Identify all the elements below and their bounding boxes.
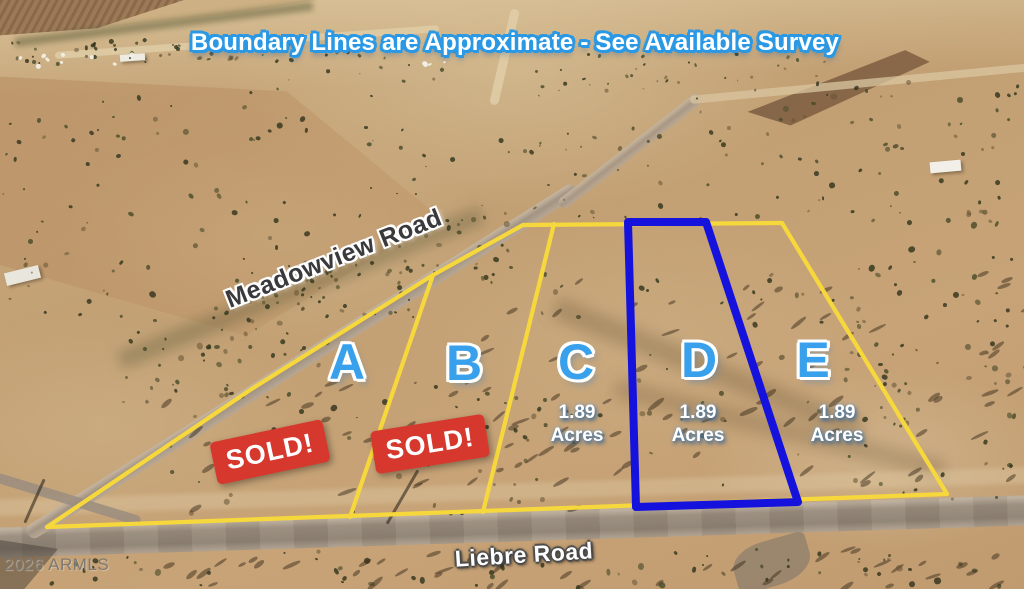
- boundary-bottom-edge: [47, 494, 947, 527]
- lot-label-a: A: [329, 333, 365, 391]
- lot-c-acres-unit: Acres: [551, 424, 604, 447]
- lot-label-c: C: [558, 333, 594, 391]
- disclaimer-banner: Boundary Lines are Approximate - See Ava…: [191, 29, 839, 57]
- lot-d-acreage: 1.89 Acres: [672, 401, 725, 447]
- lot-label-e: E: [796, 331, 829, 389]
- watermark: 2026 ARMLS: [4, 555, 109, 575]
- lot-e-acres-unit: Acres: [811, 424, 864, 447]
- boundary-divider-a-b: [350, 275, 433, 517]
- lot-c-acreage: 1.89 Acres: [551, 401, 604, 447]
- lot-label-b: B: [446, 334, 482, 392]
- boundary-divider-b-c: [483, 224, 554, 512]
- lot-d-acres-value: 1.89: [672, 401, 725, 424]
- lot-e-acres-value: 1.89: [811, 401, 864, 424]
- boundary-overlay: [0, 0, 1024, 589]
- lot-d-acres-unit: Acres: [672, 424, 725, 447]
- aerial-parcel-map: Boundary Lines are Approximate - See Ava…: [0, 0, 1024, 589]
- lot-label-d: D: [681, 331, 717, 389]
- lot-c-acres-value: 1.89: [551, 401, 604, 424]
- lot-e-acreage: 1.89 Acres: [811, 401, 864, 447]
